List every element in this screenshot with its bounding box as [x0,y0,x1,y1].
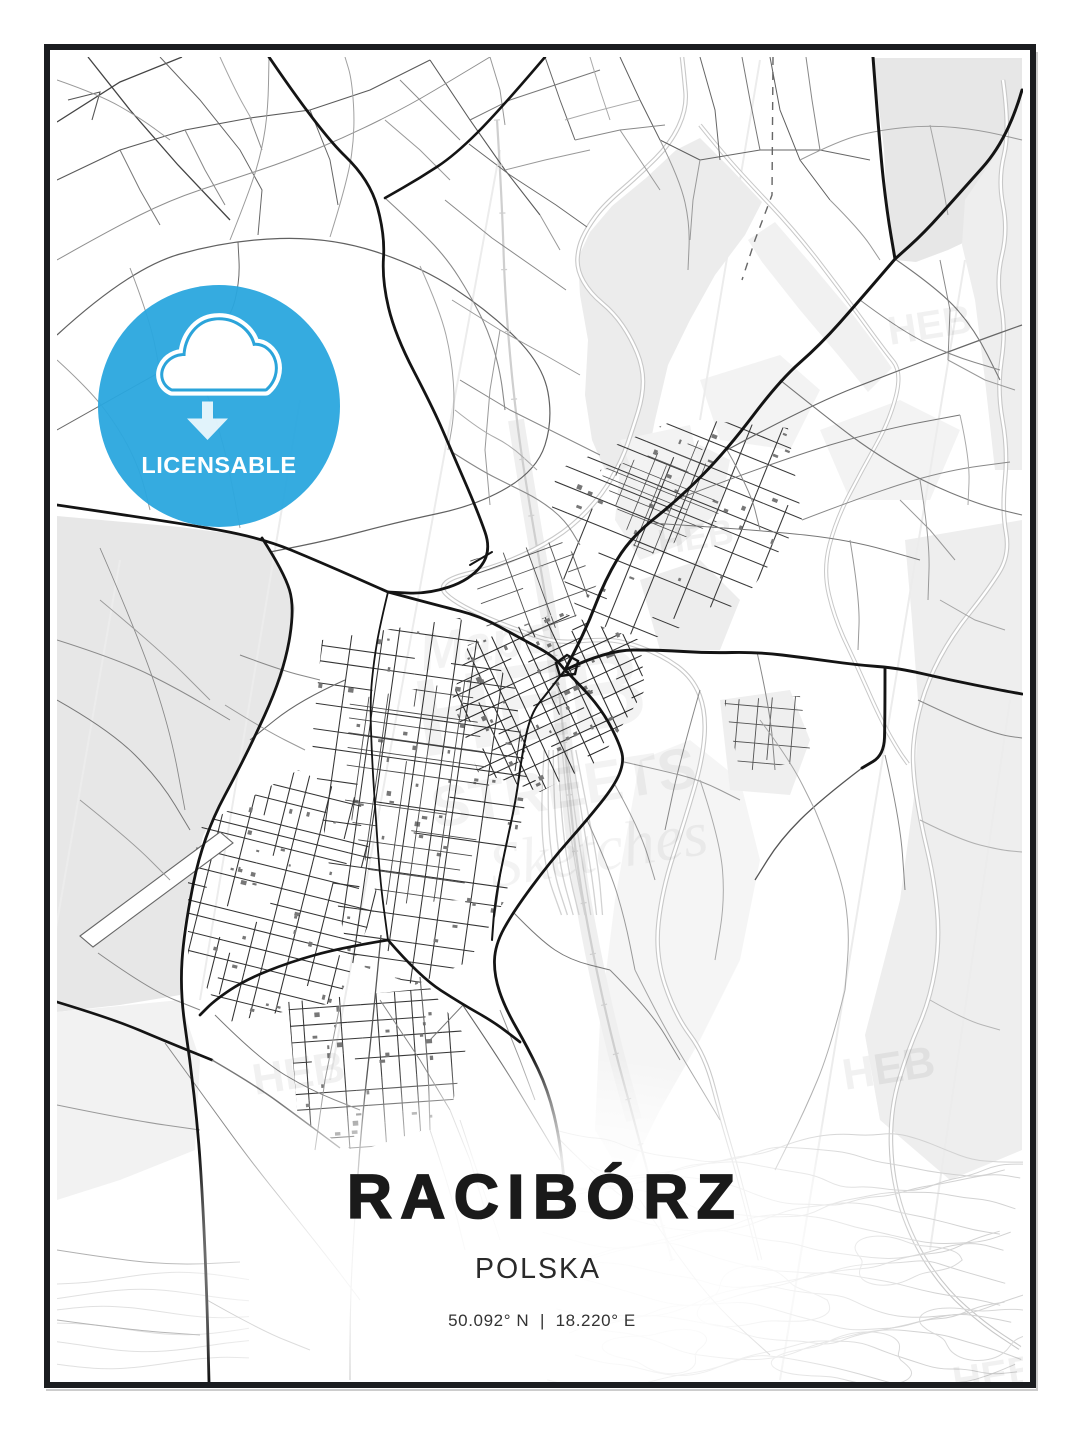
svg-text:50.092° N | 18.220° E: 50.092° N | 18.220° E [448,1311,636,1330]
svg-text:LICENSABLE: LICENSABLE [141,452,296,478]
svg-text:POLSKA: POLSKA [475,1253,601,1285]
svg-text:RACIBÓRZ: RACIBÓRZ [347,1162,743,1232]
